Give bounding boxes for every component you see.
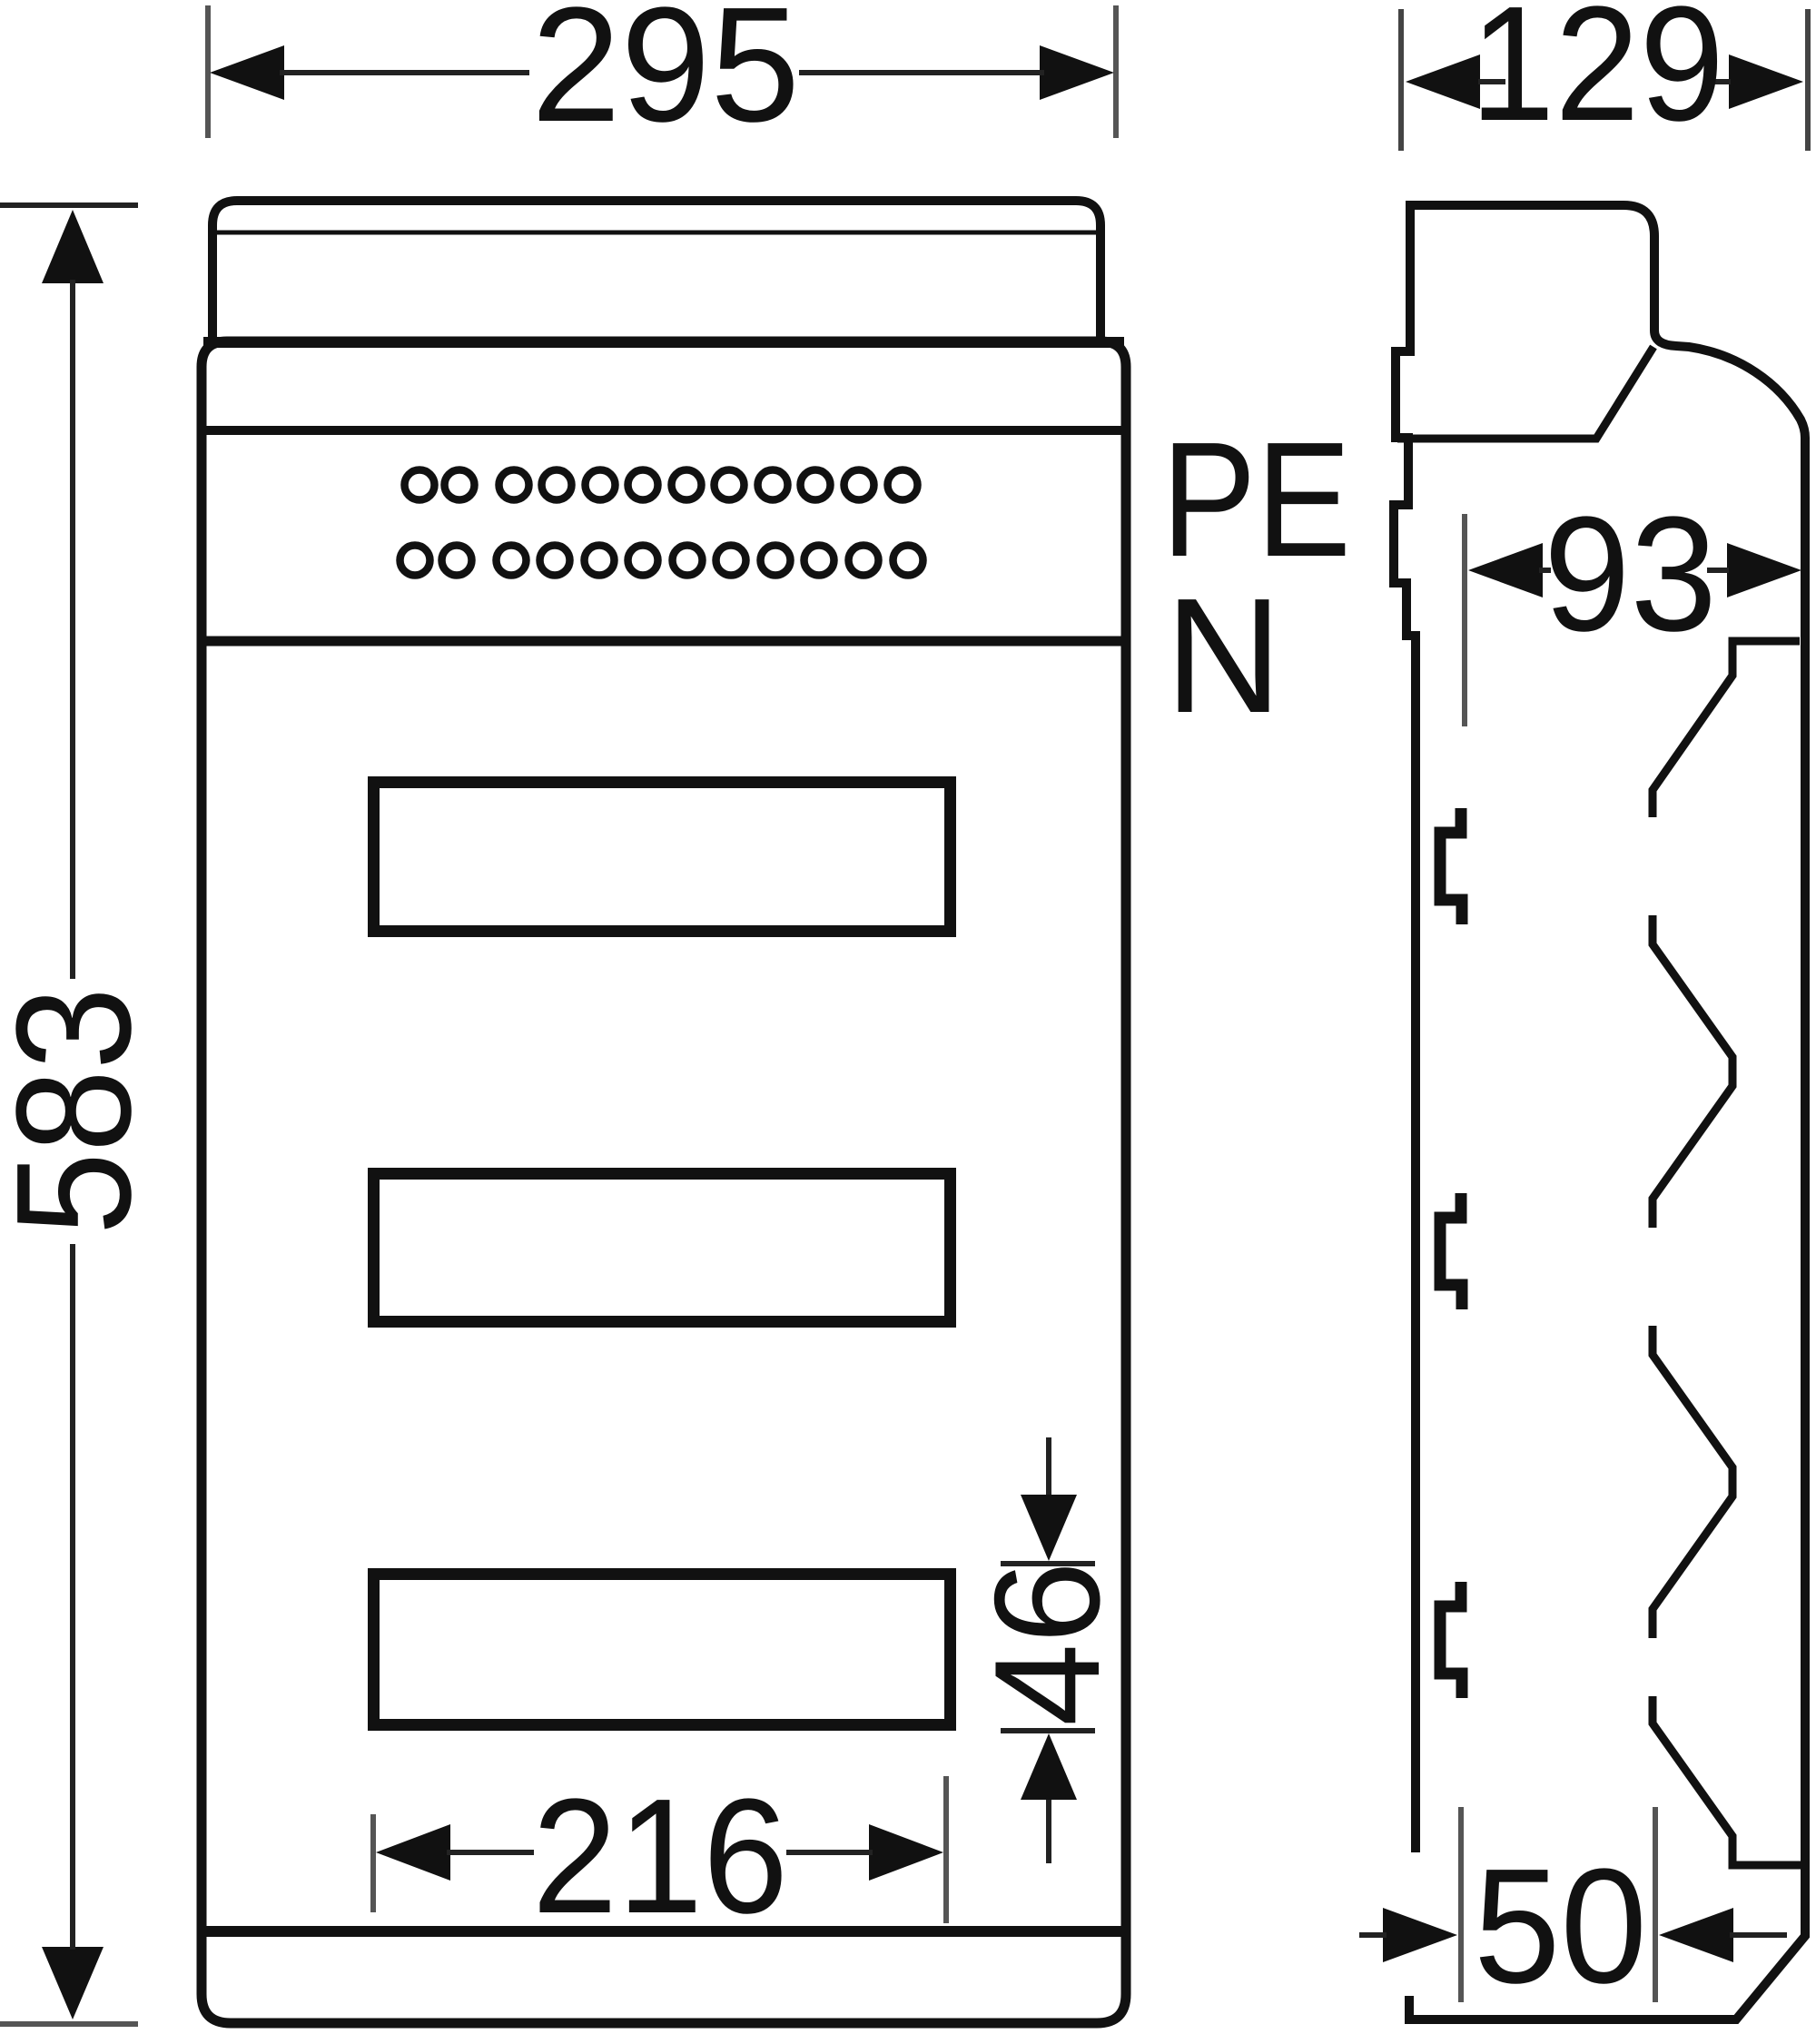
svg-text:129: 129 <box>1470 0 1724 155</box>
svg-text:583: 583 <box>0 987 165 1235</box>
svg-text:N: N <box>1165 565 1282 747</box>
svg-text:46: 46 <box>963 1561 1130 1726</box>
svg-text:93: 93 <box>1544 483 1717 666</box>
svg-text:50: 50 <box>1474 1835 1647 2018</box>
svg-text:PE: PE <box>1161 409 1351 591</box>
svg-text:295: 295 <box>531 0 800 156</box>
svg-text:216: 216 <box>532 1765 788 1948</box>
